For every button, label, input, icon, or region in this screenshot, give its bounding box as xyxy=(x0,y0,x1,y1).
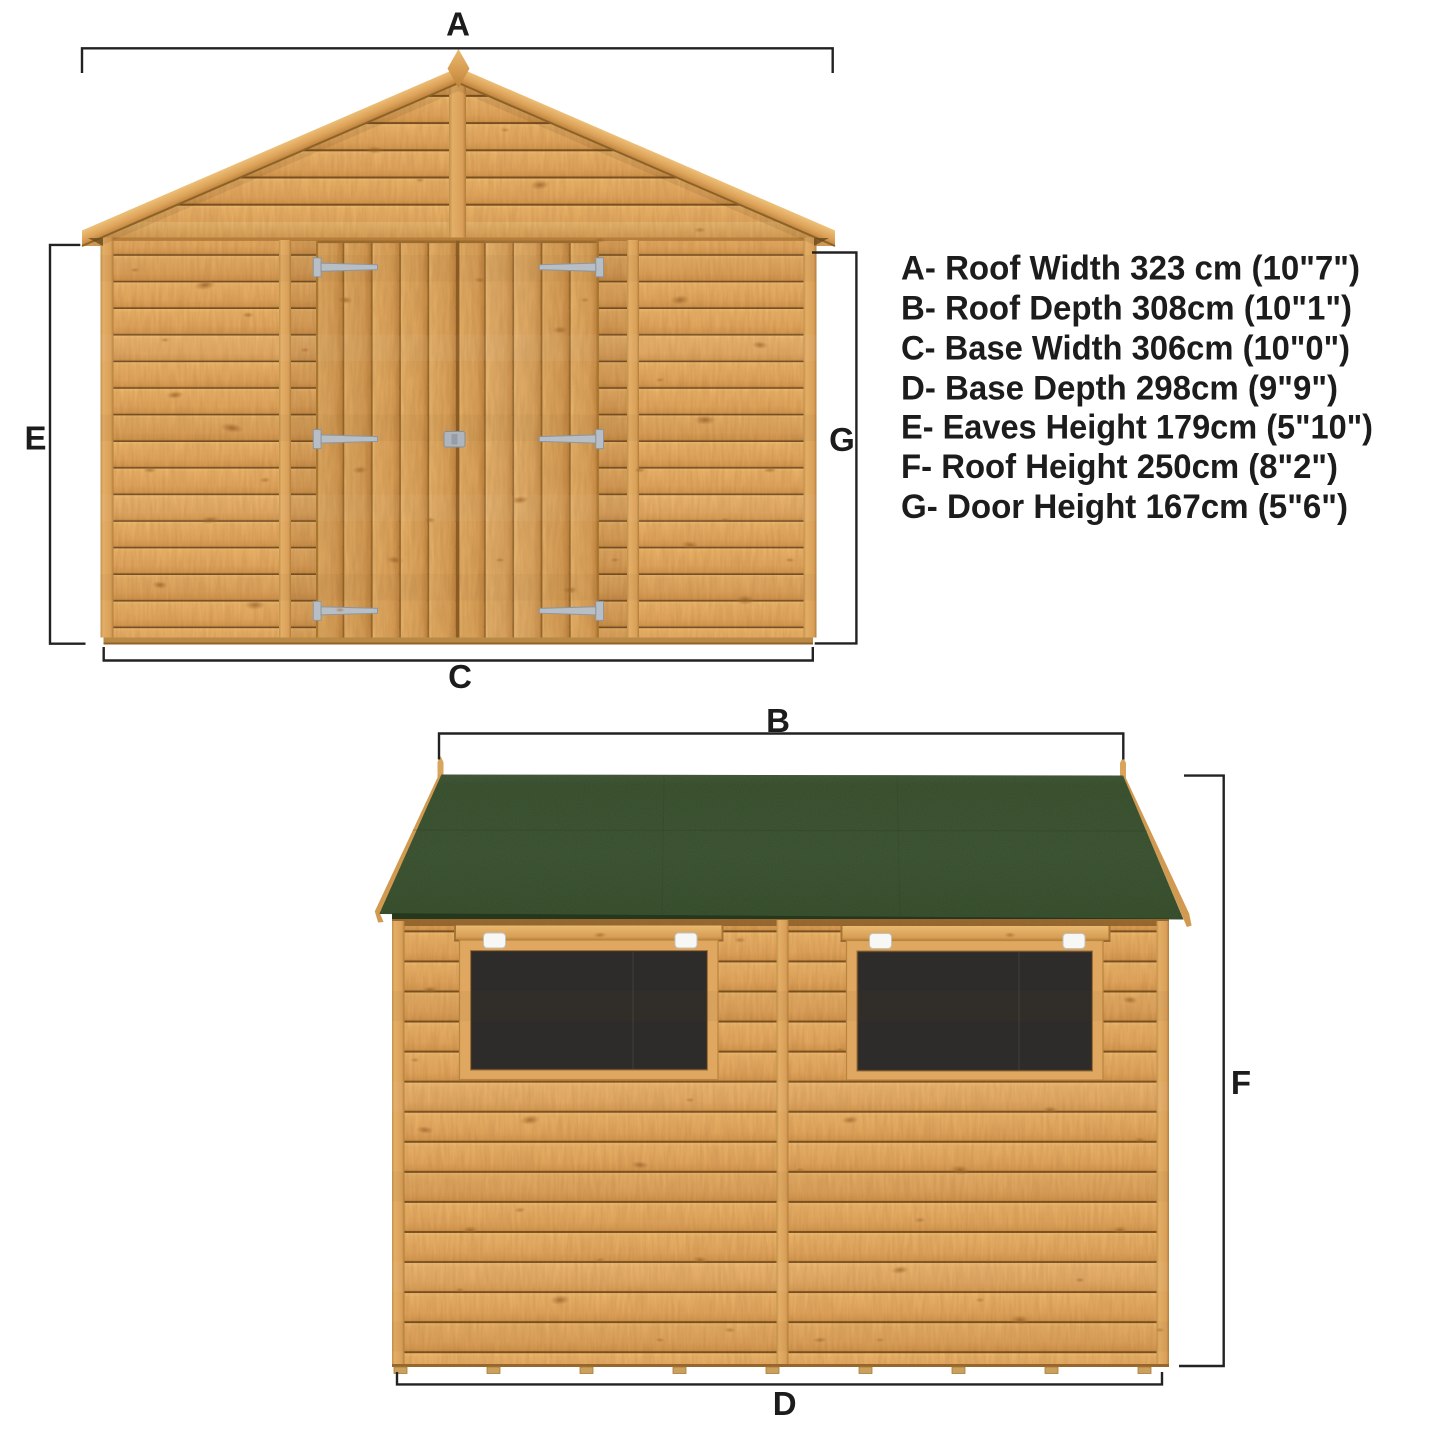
svg-text:F: F xyxy=(1231,1064,1251,1101)
svg-text:B- Roof Depth 308cm (10"1"): B- Roof Depth 308cm (10"1") xyxy=(901,290,1352,328)
svg-text:E- Eaves Height 179cm (5"10"): E- Eaves Height 179cm (5"10") xyxy=(901,409,1373,447)
svg-text:C- Base Width 306cm (10"0"): C- Base Width 306cm (10"0") xyxy=(901,329,1350,367)
svg-text:A: A xyxy=(446,6,470,43)
svg-text:G- Door Height 167cm (5"6"): G- Door Height 167cm (5"6") xyxy=(901,488,1348,526)
svg-text:D- Base Depth 298cm (9"9"): D- Base Depth 298cm (9"9") xyxy=(901,369,1338,407)
svg-text:F- Roof Height 250cm (8"2"): F- Roof Height 250cm (8"2") xyxy=(901,448,1338,486)
svg-text:C: C xyxy=(448,658,472,695)
svg-text:G: G xyxy=(829,421,855,458)
svg-text:D: D xyxy=(773,1385,797,1422)
svg-text:B: B xyxy=(766,702,790,739)
svg-text:E: E xyxy=(24,420,46,457)
svg-text:A- Roof Width 323 cm (10"7"): A- Roof Width 323 cm (10"7") xyxy=(901,250,1360,288)
